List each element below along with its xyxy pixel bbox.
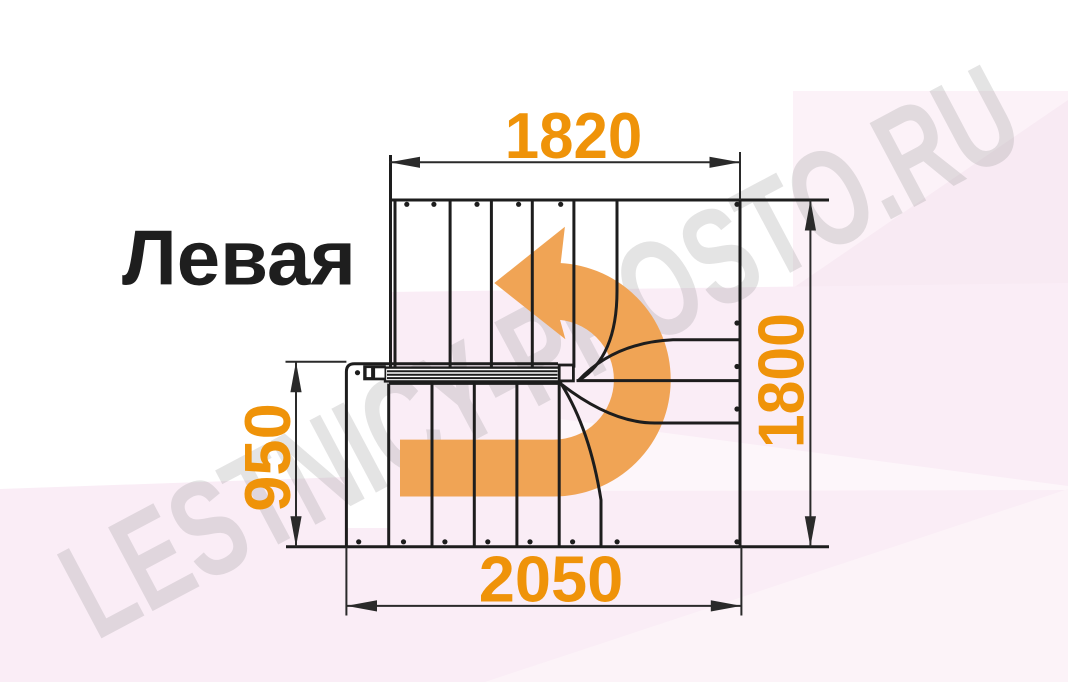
svg-text:1820: 1820: [505, 99, 643, 172]
svg-text:2050: 2050: [479, 543, 624, 616]
svg-text:Левая: Левая: [122, 214, 356, 302]
svg-text:1800: 1800: [745, 313, 818, 448]
svg-text:950: 950: [231, 403, 304, 511]
